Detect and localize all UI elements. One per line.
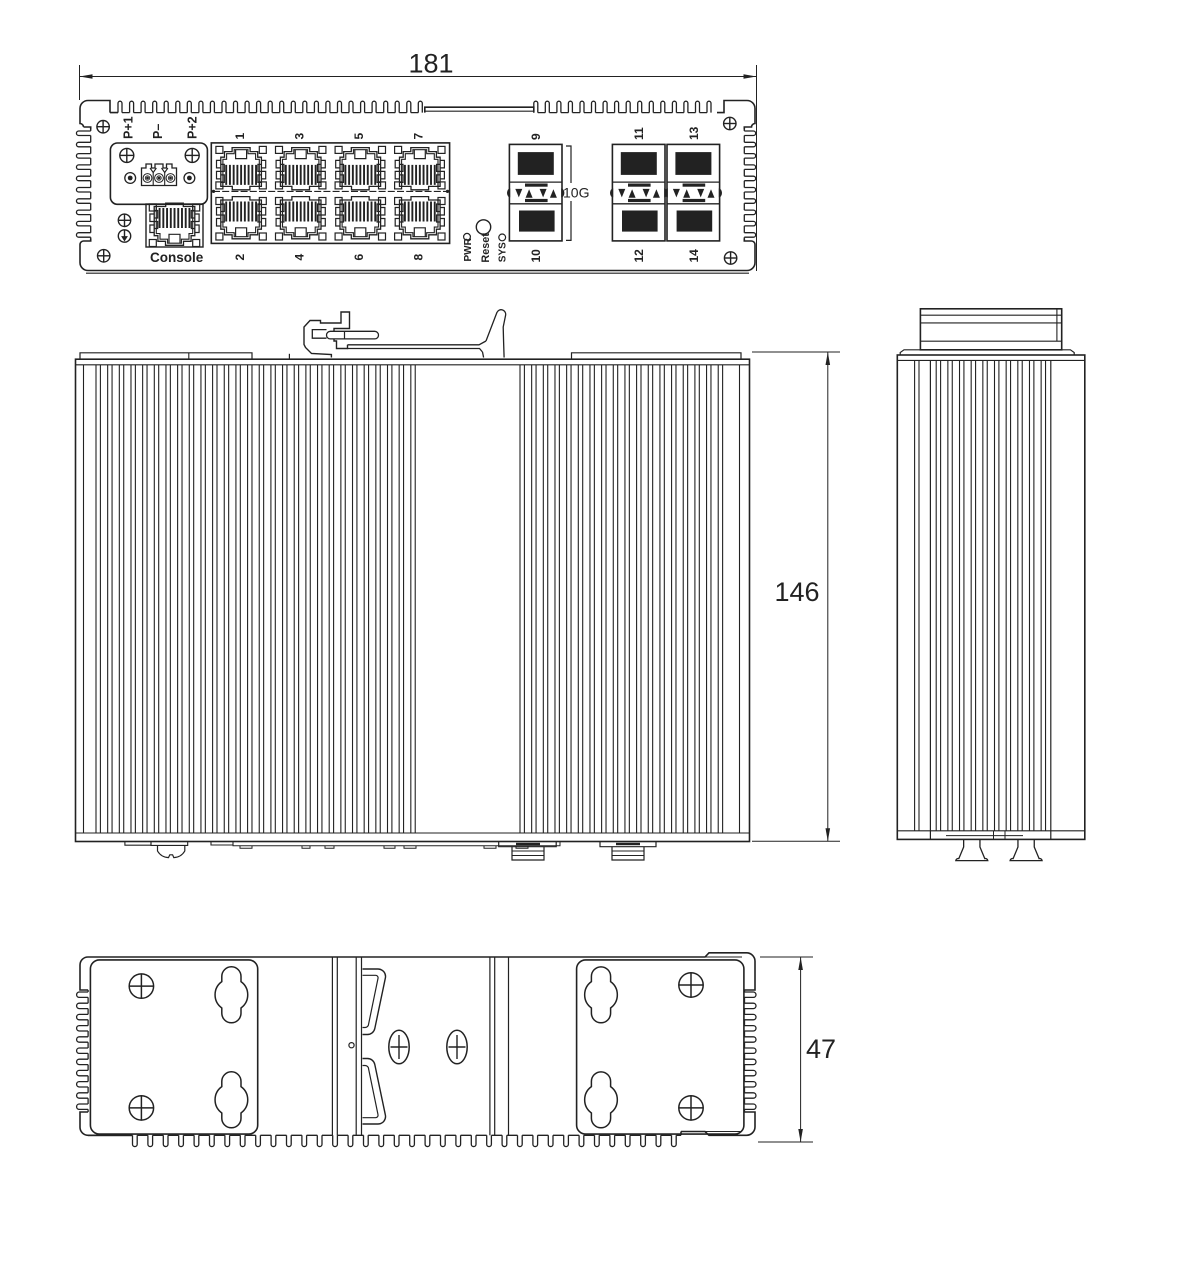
svg-text:14: 14 [687,249,701,263]
svg-text:5: 5 [352,133,366,140]
svg-text:11: 11 [632,127,646,140]
svg-text:SYS: SYS [497,242,508,262]
svg-text:P+1: P+1 [122,116,136,139]
svg-text:7: 7 [412,133,426,140]
svg-text:12: 12 [632,249,646,263]
svg-text:3: 3 [292,133,306,140]
svg-text:Console: Console [150,250,204,265]
svg-text:P–: P– [151,124,165,139]
svg-text:Reset: Reset [480,233,492,263]
svg-text:4: 4 [292,254,306,261]
svg-text:10: 10 [529,249,543,263]
svg-text:13: 13 [687,126,701,140]
svg-text:9: 9 [529,133,543,140]
svg-text:47: 47 [806,1034,836,1064]
svg-text:181: 181 [408,49,453,79]
svg-text:1: 1 [233,133,247,140]
svg-text:PWR: PWR [463,237,474,261]
svg-text:2: 2 [233,254,247,261]
svg-text:8: 8 [412,254,426,261]
svg-text:146: 146 [774,577,819,607]
svg-text:P+2: P+2 [186,116,200,139]
svg-text:6: 6 [352,254,366,261]
svg-text:10G: 10G [563,185,589,201]
